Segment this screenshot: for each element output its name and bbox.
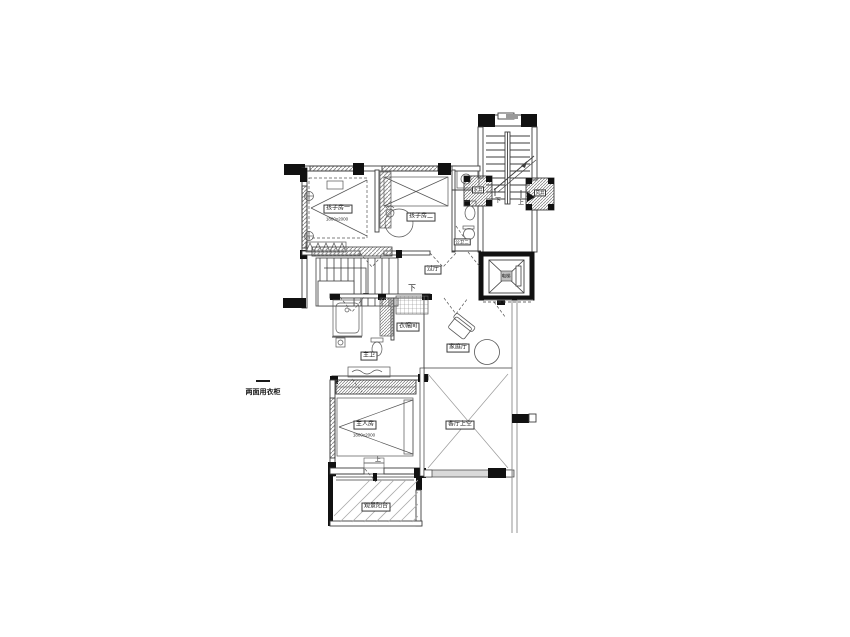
label-living-void: 客厅上空 [445, 421, 474, 430]
note-leader-dash [256, 380, 270, 382]
door-swing [468, 252, 480, 267]
wardrobe [380, 298, 393, 336]
step [364, 463, 384, 468]
toilet-tank [371, 338, 383, 342]
label-shaft-left: 水井 [472, 186, 484, 193]
kids-room-1 [305, 178, 368, 252]
label-master-bedroom: 主人房 [353, 421, 376, 430]
label-balcony-step-up: 上 [375, 455, 381, 464]
wall-corner [478, 114, 495, 127]
deck-hatch [334, 480, 418, 522]
window [382, 166, 438, 171]
wall-stub [497, 298, 505, 305]
bed-head [404, 400, 413, 454]
toilet [465, 206, 475, 220]
label-inner-stair-down: 下 [408, 283, 416, 294]
kids-room-2 [380, 172, 448, 237]
shelves [396, 296, 428, 314]
plan-linework [0, 0, 850, 637]
balustrade [312, 247, 392, 256]
label-core-down: 下 [495, 196, 501, 205]
pillow [327, 181, 343, 189]
label-elevator: 电梯 [501, 273, 511, 278]
balcony-wall [328, 476, 333, 526]
label-master-bedroom-dim: 1800x2000 [353, 433, 375, 438]
wall-flag [512, 414, 529, 423]
window [330, 398, 335, 458]
label-public-bath-2: 公卫二 [454, 238, 471, 245]
label-master-bath: 主卫 [360, 352, 377, 361]
label-kids-room-1: 孩子房一 [323, 205, 352, 214]
label-wardrobe-note: 两面用衣柜 [246, 387, 281, 397]
round-table [475, 340, 500, 365]
family-hall [424, 313, 512, 368]
sliding-door [336, 473, 414, 481]
window [310, 166, 354, 171]
label-core-up: 上 [518, 198, 524, 207]
label-hallway: 过厅 [424, 266, 441, 275]
label-balcony: 观景阳台 [361, 503, 390, 512]
room-divider [375, 170, 379, 232]
armchair [446, 313, 475, 341]
label-family-hall: 家庭厅 [446, 344, 469, 353]
window [506, 114, 518, 119]
bathtub [336, 303, 359, 333]
suite-walls [330, 294, 533, 384]
label-kids-room-1-dim: 1800x2000 [326, 217, 348, 222]
right-wall [512, 300, 536, 533]
label-shaft-right: 风井 [534, 189, 546, 196]
label-cloakroom: 衣帽间 [396, 323, 419, 332]
vanity [348, 367, 390, 377]
sink [336, 338, 345, 347]
stair-landing [318, 281, 354, 306]
wall-corner [521, 114, 537, 127]
label-kids-room-2: 孩子房二 [406, 213, 435, 222]
door-swing [444, 298, 468, 314]
floor-plan: 孩子房一 1800x2000 孩子房二 公卫二 水井 风井 过厅 下 上 下 衣… [0, 0, 850, 637]
stair-arrow [521, 161, 527, 168]
